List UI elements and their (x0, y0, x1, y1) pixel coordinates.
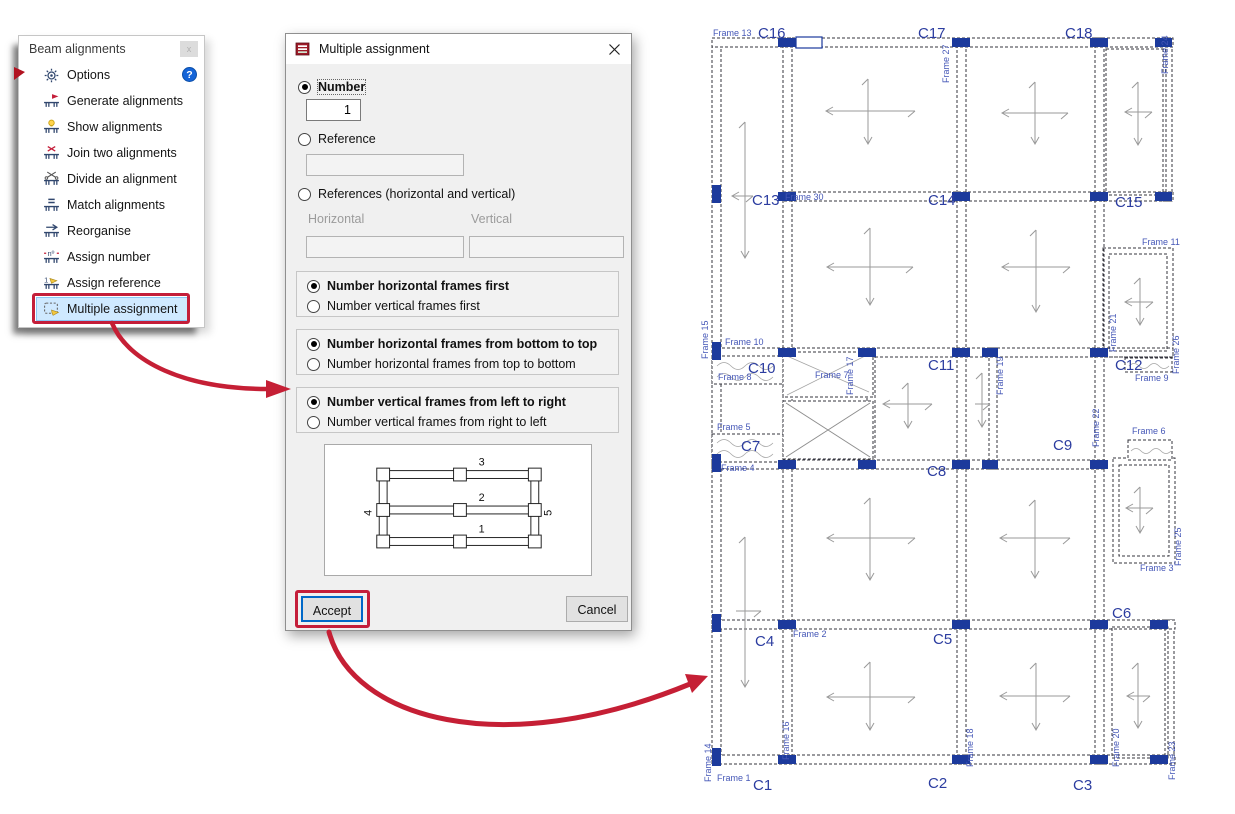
alignment-cross (1126, 487, 1153, 533)
radio-label: Number horizontal frames from bottom to … (327, 337, 597, 351)
menu-item-label: Match alignments (67, 198, 165, 212)
dialog-close-button[interactable] (597, 34, 631, 64)
radio-vertical-left-to-right[interactable]: Number vertical frames from left to righ… (307, 392, 618, 412)
radio-label: Number horizontal frames from top to bot… (327, 357, 576, 371)
plan-label-c9: C9 (1053, 437, 1072, 454)
menu-item-divide-an-alignment[interactable]: Divide an alignment (19, 166, 204, 192)
plan-label-frame-16: Frame 16 (781, 721, 791, 760)
alignment-cross (827, 228, 913, 305)
menu-item-show-alignments[interactable]: Show alignments (19, 114, 204, 140)
preview-label-2: 2 (479, 492, 485, 504)
cancel-button[interactable]: Cancel (566, 596, 628, 622)
alignment-cross (1125, 278, 1153, 325)
alignment-cross (826, 79, 915, 144)
plan-label-frame-8: Frame 8 (718, 372, 752, 382)
match-alignments-icon (43, 197, 60, 214)
dialog-title-bar: Multiple assignment (286, 34, 631, 64)
radio-dot (307, 338, 320, 351)
dialog-title: Multiple assignment (319, 42, 429, 56)
reference-input (306, 154, 464, 176)
plan-label-c16: C16 (758, 25, 786, 42)
menu-item-assign-number[interactable]: nº Assign number (19, 244, 204, 270)
curved-arrow (329, 632, 690, 725)
plan-labels: C16C17C18C13C14C15C10C11C12C7C8C9C4C5C6C… (700, 25, 1183, 794)
horizontal-label: Horizontal (308, 212, 364, 226)
radio-number-horizontal-frames-first[interactable]: Number horizontal frames first (307, 276, 618, 296)
divide-alignment-icon (43, 171, 60, 188)
plan-label-c13: C13 (752, 192, 780, 209)
generate-alignments-icon (43, 93, 60, 110)
plan-label-c18: C18 (1065, 25, 1093, 42)
menu-item-match-alignments[interactable]: Match alignments (19, 192, 204, 218)
radio-label: Number vertical frames from left to righ… (327, 395, 566, 409)
menu-item-join-two-alignments[interactable]: Join two alignments (19, 140, 204, 166)
plan-label-c3: C3 (1073, 777, 1092, 794)
plan-label-c5: C5 (933, 631, 952, 648)
menu-item-label: Join two alignments (67, 146, 177, 160)
radio-vertical-right-to-left[interactable]: Number vertical frames from right to lef… (307, 412, 618, 432)
menu-item-label: Reorganise (67, 224, 131, 238)
plan-label-frame-10: Frame 10 (725, 337, 764, 347)
floor-plan: C16C17C18C13C14C15C10C11C12C7C8C9C4C5C6C… (695, 10, 1235, 805)
radio-horizontal-top-to-bottom[interactable]: Number horizontal frames from top to bot… (307, 354, 618, 374)
plan-label-c12: C12 (1115, 357, 1143, 374)
number-input[interactable] (306, 99, 361, 121)
group-frame-order: Number horizontal frames first Number ve… (296, 271, 619, 317)
plan-label-frame-21: Frame 21 (1108, 313, 1118, 352)
screenshot-stage: Beam alignments x Options ? Generate ali… (0, 0, 1235, 814)
alignment-cross (732, 122, 753, 258)
show-alignments-icon (43, 119, 60, 136)
menu-item-label: Options (67, 68, 110, 82)
plan-label-frame-14: Frame 14 (703, 743, 713, 782)
plan-label-frame-13: Frame 13 (713, 28, 752, 38)
panel-title: Beam alignments (29, 42, 126, 56)
numbering-preview-diagram: 3 2 1 4 5 (324, 444, 592, 576)
plan-label-c17: C17 (918, 25, 946, 42)
alignment-cross (1002, 82, 1068, 144)
menu-item-label: Show alignments (67, 120, 162, 134)
alignment-cross (1002, 230, 1070, 312)
plan-label-frame-9: Frame 9 (1135, 373, 1169, 383)
plan-label-c8: C8 (927, 463, 946, 480)
radio-dot (298, 188, 311, 201)
close-icon (609, 44, 620, 55)
plan-label-frame-23: Frame 23 (1167, 741, 1177, 780)
vertical-label: Vertical (471, 212, 512, 226)
panel-title-bar: Beam alignments x (19, 36, 204, 62)
assign-reference-icon: 1 (43, 275, 60, 292)
radio-dot (298, 133, 311, 146)
plan-label-c15: C15 (1115, 194, 1143, 211)
beam-alignments-panel: Beam alignments x Options ? Generate ali… (18, 35, 205, 328)
radio-label: Reference (318, 132, 376, 146)
plan-label-c2: C2 (928, 775, 947, 792)
alignment-cross (883, 383, 932, 428)
plan-label-c14: C14 (928, 192, 956, 209)
radio-dot (298, 81, 311, 94)
plan-label-frame-25: Frame 25 (1173, 527, 1183, 566)
plan-label-frame-2: Frame 2 (793, 629, 827, 639)
options-gear-icon (43, 67, 60, 84)
alignment-cross (827, 498, 915, 580)
plan-label-c10: C10 (748, 360, 776, 377)
radio-dot (307, 396, 320, 409)
group-horizontal-direction: Number horizontal frames from bottom to … (296, 329, 619, 375)
help-icon[interactable]: ? (182, 67, 197, 82)
radio-label: Number vertical frames first (327, 299, 480, 313)
plan-label-frame-7: Frame 7 (815, 370, 849, 380)
alignment-cross (1127, 663, 1150, 728)
plan-label-c11: C11 (928, 357, 954, 374)
alignment-cross (1000, 500, 1070, 578)
menu-item-label: Assign number (67, 250, 150, 264)
plan-label-frame-6: Frame 6 (1132, 426, 1166, 436)
plan-label-frame-26: Frame 26 (1171, 335, 1181, 374)
plan-label-frame-3: Frame 3 (1140, 563, 1174, 573)
svg-text:nº: nº (47, 249, 54, 258)
plan-label-frame-24: Frame 24 (1160, 35, 1170, 74)
panel-close-button[interactable]: x (180, 41, 198, 57)
plan-label-frame-27: Frame 27 (941, 44, 951, 83)
svg-text:1: 1 (44, 275, 48, 284)
preview-label-1: 1 (479, 524, 485, 536)
plan-label-frame-1: Frame 1 (717, 773, 751, 783)
plan-label-frame-5: Frame 5 (717, 422, 751, 432)
menu-item-label: Assign reference (67, 276, 161, 290)
plan-label-c6: C6 (1112, 605, 1131, 622)
curved-arrow (112, 323, 268, 389)
red-highlight-box-menu (32, 293, 190, 324)
menu-item-label: Generate alignments (67, 94, 183, 108)
horizontal-reference-input (306, 236, 464, 258)
radio-dot (307, 358, 320, 371)
plan-label-c7: C7 (741, 438, 760, 455)
reorganise-icon (43, 223, 60, 240)
alignment-cross (827, 662, 915, 730)
plan-label-frame-22: Frame 22 (1091, 408, 1101, 447)
plan-label-frame-4: Frame 4 (721, 463, 755, 473)
preview-label-3: 3 (479, 457, 485, 469)
group-vertical-direction: Number vertical frames from left to righ… (296, 387, 619, 433)
plan-label-frame-11: Frame 11 (1142, 237, 1180, 247)
menu-item-reorganise[interactable]: Reorganise (19, 218, 204, 244)
red-flag-pointer (14, 67, 25, 80)
menu-item-label: Divide an alignment (67, 172, 177, 186)
alignment-cross (975, 373, 990, 427)
menu-item-options[interactable]: Options ? (19, 62, 204, 88)
alignment-cross (1000, 663, 1070, 730)
radio-dot (307, 300, 320, 313)
plan-label-frame-15: Frame 15 (700, 320, 710, 359)
alignment-cross (1125, 82, 1152, 145)
red-highlight-box-accept (295, 590, 370, 628)
radio-dot (307, 280, 320, 293)
radio-label: References (horizontal and vertical) (318, 187, 515, 201)
plan-label-frame-18: Frame 18 (965, 728, 975, 767)
radio-label: Number (318, 80, 365, 94)
dialog-app-icon (295, 41, 311, 57)
plan-label-c1: C1 (753, 777, 772, 794)
radio-label: Number vertical frames from right to lef… (327, 415, 547, 429)
plan-label-frame-19: Frame 19 (995, 356, 1005, 395)
radio-number-vertical-frames-first[interactable]: Number vertical frames first (307, 296, 618, 316)
assign-number-icon: nº (43, 249, 60, 266)
multiple-assignment-dialog: Multiple assignment Number Reference Ref… (285, 33, 632, 631)
radio-dot (307, 416, 320, 429)
menu-item-generate-alignments[interactable]: Generate alignments (19, 88, 204, 114)
alignment-cross (736, 537, 761, 687)
radio-reference[interactable]: Reference (298, 132, 376, 146)
radio-horizontal-bottom-to-top[interactable]: Number horizontal frames from bottom to … (307, 334, 618, 354)
join-alignments-icon (43, 145, 60, 162)
plan-label-c4: C4 (755, 633, 774, 650)
preview-label-5: 5 (543, 510, 555, 516)
vertical-reference-input (469, 236, 624, 258)
preview-label-4: 4 (362, 510, 374, 516)
plan-label-frame-20: Frame 20 (1111, 728, 1121, 767)
plan-label-frame-17: Frame 17 (845, 356, 855, 395)
radio-references-both[interactable]: References (horizontal and vertical) (298, 187, 515, 201)
radio-number[interactable]: Number (298, 80, 365, 94)
radio-label: Number horizontal frames first (327, 279, 509, 293)
plan-label-frame-30: Frame 30 (785, 192, 824, 202)
